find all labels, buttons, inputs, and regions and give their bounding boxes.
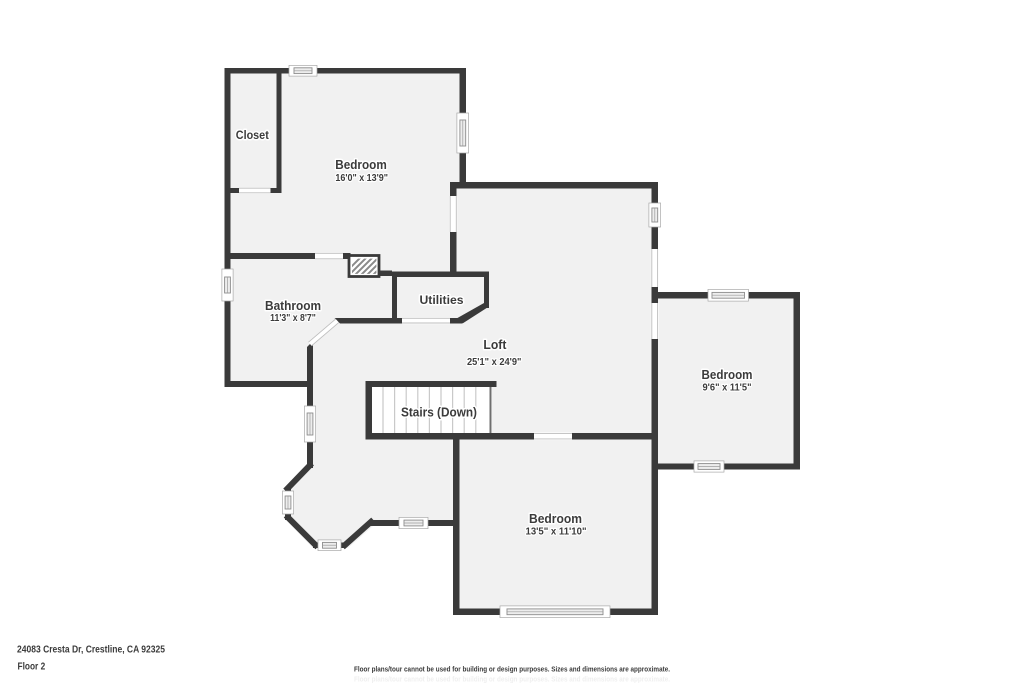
svg-text:25'1" x 24'9": 25'1" x 24'9" bbox=[467, 357, 522, 368]
svg-text:Loft: Loft bbox=[483, 337, 507, 352]
svg-text:Bedroom: Bedroom bbox=[702, 367, 753, 382]
svg-text:Bedroom: Bedroom bbox=[335, 157, 387, 172]
svg-text:16'0" x 13'9": 16'0" x 13'9" bbox=[335, 173, 388, 184]
svg-text:Floor plans/tour cannot be use: Floor plans/tour cannot be used for buil… bbox=[354, 677, 670, 683]
svg-text:Floor 2: Floor 2 bbox=[18, 662, 46, 673]
svg-text:24083 Cresta Dr, Crestline, CA: 24083 Cresta Dr, Crestline, CA 92325 bbox=[17, 645, 165, 656]
svg-text:11'3" x 8'7": 11'3" x 8'7" bbox=[270, 313, 316, 324]
svg-text:Bedroom: Bedroom bbox=[529, 511, 582, 526]
svg-text:Stairs (Down): Stairs (Down) bbox=[401, 405, 477, 420]
svg-text:Closet: Closet bbox=[236, 128, 269, 142]
svg-text:Utilities: Utilities bbox=[420, 293, 464, 307]
svg-text:Floor plans/tour cannot be use: Floor plans/tour cannot be used for buil… bbox=[354, 666, 670, 673]
svg-text:9'6" x 11'5": 9'6" x 11'5" bbox=[703, 383, 752, 394]
svg-text:Bathroom: Bathroom bbox=[265, 298, 321, 313]
svg-text:13'5" x 11'10": 13'5" x 11'10" bbox=[526, 527, 587, 538]
